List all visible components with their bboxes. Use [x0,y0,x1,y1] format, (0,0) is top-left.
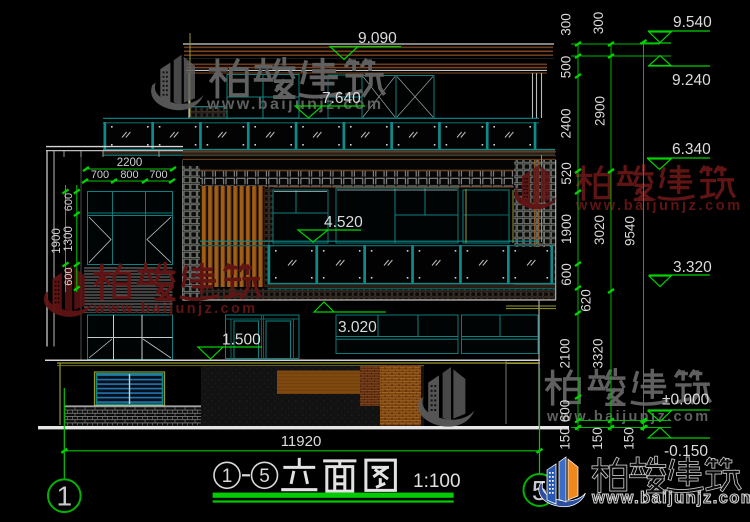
svg-text:300: 300 [591,12,606,35]
svg-text:600: 600 [559,263,574,286]
svg-text:1900: 1900 [51,228,63,254]
svg-text:7.640: 7.640 [322,90,361,107]
svg-text:600: 600 [558,400,573,423]
svg-text:1:100: 1:100 [413,471,461,492]
svg-text:3320: 3320 [591,338,606,368]
svg-text:800: 800 [120,169,138,181]
svg-text:1300: 1300 [63,226,75,252]
svg-text:3.020: 3.020 [338,319,377,336]
svg-text:1: 1 [57,481,73,512]
svg-text:150: 150 [622,427,637,450]
svg-text:9540: 9540 [623,216,638,246]
svg-text:5: 5 [259,466,270,487]
svg-text:www.baijunjz.com: www.baijunjz.com [93,301,258,317]
svg-text:www.baijunjz.com: www.baijunjz.com [575,198,743,214]
svg-text:9.540: 9.540 [673,14,712,31]
svg-text:3020: 3020 [592,215,607,245]
svg-text:6.340: 6.340 [672,141,711,158]
svg-text:1: 1 [222,466,233,487]
svg-text:500: 500 [559,56,574,79]
svg-text:520: 520 [559,162,574,185]
svg-text:9.240: 9.240 [672,72,711,89]
svg-text:700: 700 [91,169,109,181]
svg-text:2400: 2400 [559,108,574,138]
svg-text:1.500: 1.500 [222,332,261,349]
svg-text:9.090: 9.090 [358,30,397,47]
svg-text:4.520: 4.520 [324,214,363,231]
svg-text:2900: 2900 [593,96,608,126]
svg-text:600: 600 [63,267,75,285]
svg-text:150: 150 [590,427,605,450]
svg-text:3.320: 3.320 [673,259,712,276]
svg-text:±0.000: ±0.000 [662,392,710,409]
svg-text:300: 300 [559,13,574,36]
svg-text:1900: 1900 [559,214,574,244]
svg-text:700: 700 [149,169,167,181]
svg-text:150: 150 [558,427,573,450]
svg-text:11920: 11920 [281,433,322,450]
svg-text:600: 600 [63,193,75,211]
svg-text:620: 620 [579,289,594,312]
svg-text:www.baijunjz.com: www.baijunjz.com [591,489,750,507]
svg-text:2200: 2200 [117,157,143,169]
svg-text:2100: 2100 [558,338,573,368]
